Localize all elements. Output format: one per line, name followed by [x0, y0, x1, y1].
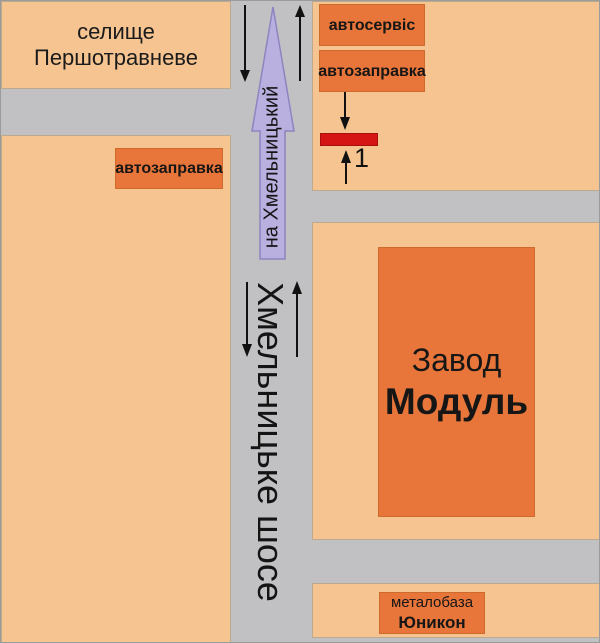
gas-station-right-label: автозаправка [318, 62, 425, 81]
traffic-arrow-up-mid-icon [292, 281, 302, 357]
metal-base-label-line1: металобаза [391, 593, 473, 612]
gas-station-left-label: автозаправка [115, 159, 222, 178]
traffic-arrow-up-top-icon [295, 5, 305, 81]
village-label: селище Першотравневе [2, 2, 230, 88]
gas-station-left-landmark: автозаправка [115, 148, 223, 189]
autoservice-landmark: автосервіс [319, 4, 425, 46]
direction-arrow-label: на Хмельницький [261, 86, 284, 249]
gas-station-right-landmark: автозаправка [319, 50, 425, 92]
metal-base-label-line2: Юникон [398, 612, 465, 633]
location-marker-bar [320, 133, 378, 146]
factory-label-line2: Модуль [385, 380, 528, 424]
location-marker-number: 1 [354, 145, 369, 172]
left-block [1, 135, 231, 643]
metal-base-landmark: металобаза Юникон [379, 592, 485, 634]
village-label-line1: селище [77, 19, 155, 45]
village-block: селище Першотравневе [1, 1, 231, 89]
road-name-label: Хмельницьке шосе [249, 282, 291, 602]
factory-landmark: Завод Модуль [378, 247, 535, 517]
traffic-arrow-down-top-icon [240, 5, 250, 82]
city-map: селище Першотравневе автосервіс автозапр… [0, 0, 600, 643]
village-label-line2: Першотравневе [34, 45, 198, 71]
autoservice-label: автосервіс [329, 16, 415, 35]
factory-label-line1: Завод [412, 340, 502, 380]
